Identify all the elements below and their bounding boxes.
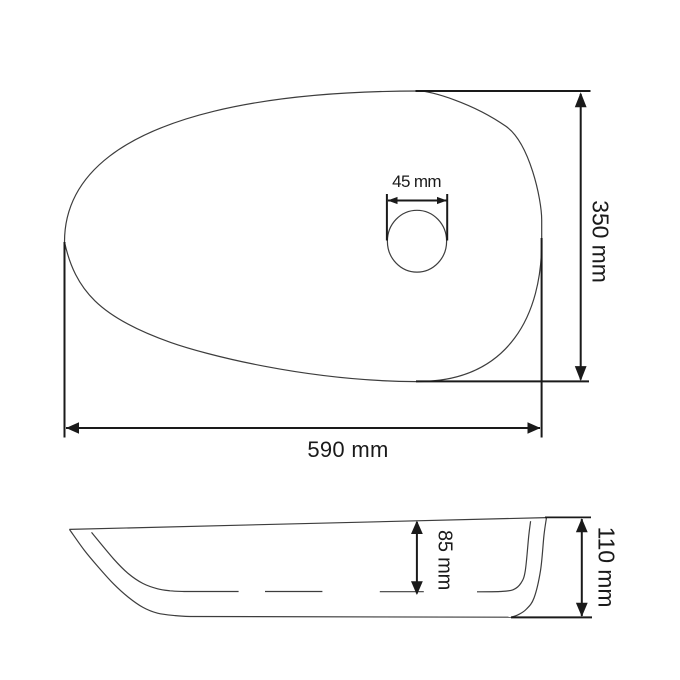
svg-text:590 mm: 590 mm — [307, 437, 388, 462]
svg-text:85 mm: 85 mm — [434, 530, 456, 590]
svg-text:45 mm: 45 mm — [392, 172, 441, 191]
svg-text:350 mm: 350 mm — [588, 200, 614, 282]
svg-text:110 mm: 110 mm — [594, 527, 620, 608]
